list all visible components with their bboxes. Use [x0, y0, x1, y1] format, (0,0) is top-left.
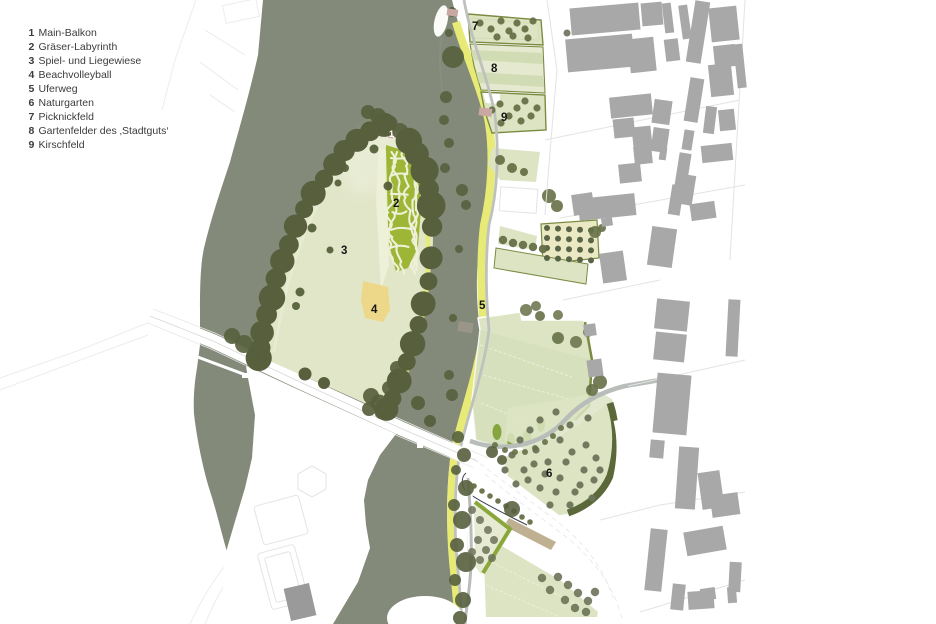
svg-text:1: 1 — [389, 129, 394, 139]
svg-text:2: 2 — [393, 198, 399, 210]
svg-text:4: 4 — [29, 69, 35, 81]
svg-text:8: 8 — [491, 63, 498, 75]
svg-text:Picknickfeld: Picknickfeld — [39, 111, 95, 123]
svg-text:7: 7 — [29, 111, 35, 123]
svg-text:Beachvolleyball: Beachvolleyball — [39, 69, 112, 81]
svg-text:Naturgarten: Naturgarten — [39, 97, 95, 109]
svg-text:6: 6 — [29, 97, 35, 109]
svg-text:3: 3 — [29, 55, 35, 67]
svg-text:2: 2 — [29, 41, 35, 53]
svg-text:Main-Balkon: Main-Balkon — [39, 27, 98, 39]
svg-text:9: 9 — [29, 139, 35, 151]
svg-text:9: 9 — [501, 112, 507, 124]
svg-text:Gräser-Labyrinth: Gräser-Labyrinth — [39, 41, 118, 53]
svg-text:5: 5 — [29, 83, 35, 95]
svg-text:8: 8 — [29, 125, 35, 137]
svg-text:5: 5 — [479, 300, 486, 312]
svg-text:3: 3 — [341, 245, 347, 257]
svg-text:7: 7 — [472, 21, 478, 33]
svg-text:4: 4 — [371, 304, 378, 316]
svg-text:Kirschfeld: Kirschfeld — [39, 139, 85, 151]
svg-text:Spiel- und Liegewiese: Spiel- und Liegewiese — [39, 55, 142, 67]
svg-text:Gartenfelder des ‚Stadtguts‘: Gartenfelder des ‚Stadtguts‘ — [39, 125, 169, 137]
svg-text:6: 6 — [546, 468, 552, 480]
svg-text:1: 1 — [29, 27, 35, 39]
svg-text:Uferweg: Uferweg — [39, 83, 78, 95]
